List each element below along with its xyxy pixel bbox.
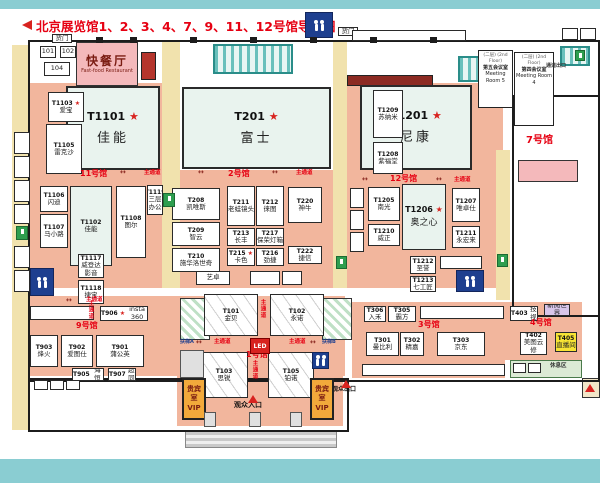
booth-T1210: T1210威正 [368, 224, 400, 246]
main-aisle-label: 主通道 [454, 178, 471, 184]
hall3-label: 3号馆 [418, 321, 440, 329]
exit-sign-icon [336, 256, 347, 269]
booth-box [420, 306, 504, 319]
booth-102: 102 [60, 46, 76, 58]
hall2-label: 2号馆 [228, 170, 250, 178]
booth-T1119: T1119三层办公 [147, 185, 163, 215]
booth-104: 104 [44, 62, 70, 76]
booth-T1105: T1105雷克沙 [46, 124, 82, 174]
booth-box [580, 28, 596, 40]
booth-T1208: T1208紫福堂 [373, 142, 403, 174]
exit-arrow-icon [585, 384, 595, 392]
wall-pillar [370, 37, 377, 43]
booth-box [14, 180, 30, 202]
entrance-post [249, 412, 261, 427]
booth-T1205: T1205南光 [368, 187, 400, 221]
escalator-b-label: 扶梯B [322, 340, 336, 345]
wall-pillar [250, 37, 257, 43]
booth-T1209: T1209苏纳米 [373, 90, 403, 138]
booth-box [513, 363, 526, 373]
booth-T1107: T1107马小路 [40, 214, 68, 248]
booth-box [14, 270, 30, 292]
aisle-arrow: ↔ [120, 169, 126, 176]
booth-T201: T201 ★富士 [182, 87, 331, 169]
aisle-arrow: ↔ [196, 339, 202, 346]
rest-area-label: 休息区 [550, 364, 567, 370]
booth-艺卓: 艺卓 [196, 271, 230, 285]
booth-T222: T222捷信 [288, 246, 322, 264]
passage-exit-label: 通道出口 [546, 64, 566, 69]
booth-box [250, 271, 280, 285]
booth-box [66, 380, 80, 390]
hall7-wall [512, 95, 600, 317]
booth-T405: T405直播间 [555, 332, 577, 352]
exit-sign-icon [497, 254, 508, 267]
main-aisle-label: 主通道 [214, 340, 231, 346]
booth-T103: T103思锐 [200, 352, 248, 398]
booth-T402: T402美图云修 [520, 332, 547, 355]
booth-T1206: T1206 ★奥之心 [402, 184, 446, 250]
booth-T209: T209智云 [172, 222, 220, 246]
booth-T215: T215 ★卡色 [227, 248, 255, 266]
booth-T901: T901蒲公英 [96, 335, 144, 367]
wall-pillar [96, 37, 103, 43]
hall9-label: 9号馆 [76, 322, 98, 330]
booth-新阅世界: 新阅世界 [544, 304, 570, 316]
booth-box [14, 132, 30, 154]
service-desk [180, 350, 204, 378]
aisle-arrow: ↔ [310, 339, 316, 346]
booth-T105: T105铂诺 [268, 352, 314, 398]
booth-T212: T212徕图 [256, 186, 284, 226]
aisle-arrow: ↔ [272, 169, 278, 176]
led-screen: LED [250, 338, 270, 354]
wall-pillar [190, 37, 197, 43]
booth-T1103: T1103 ★爱宝 [48, 92, 84, 122]
floor-map: 北京展览馆1、2、3、4、7、9、11、12号馆导览图 T1101 ★佳能T20… [0, 0, 600, 483]
booth-快餐厅: 快餐厅Fast-food Restaurant [76, 42, 138, 86]
restroom-icon [305, 12, 333, 38]
main-aisle-label: 主通道 [296, 171, 313, 177]
booth-T906: T906 ★insta 360 [100, 306, 148, 321]
bottom-border [0, 459, 600, 483]
booth-T301: T301曼比利 [366, 332, 399, 356]
booth-101: 101 [40, 46, 56, 58]
wall-pillar [430, 37, 437, 43]
top-border [0, 0, 600, 9]
hall11-label: 11号馆 [80, 170, 107, 178]
booth-T210: T210施华洛世奇 [172, 248, 220, 272]
booth-box [362, 364, 505, 376]
wall-pillar [130, 37, 137, 43]
escalator-a-label: 扶梯A [180, 340, 194, 345]
booth-T1207: T1207唯卓仕 [452, 188, 480, 222]
exit-arrow-icon [341, 380, 351, 388]
main-aisle-label: 主通道 [144, 171, 161, 177]
entrance-post [290, 412, 302, 427]
booth-box [350, 210, 364, 230]
booth-T305: T305霸方 [388, 306, 416, 322]
booth-T211: T211老蛙镜头 [227, 186, 255, 226]
restroom-icon [456, 270, 484, 292]
booth-T902: T902爱图仕 [61, 335, 93, 367]
restroom-icon [30, 268, 54, 296]
exit-sign-icon [163, 193, 175, 207]
hall7-label: 7号馆 [526, 136, 553, 146]
booth-T1117: T1117威登达影音 [78, 254, 104, 278]
booth-T213: T213长丰 [227, 228, 255, 246]
main-aisle-label: 主通道 [259, 299, 265, 319]
booth-box [282, 271, 302, 285]
map-marker-icon [22, 20, 32, 30]
hall12-label: 12号馆 [390, 175, 417, 183]
exit-sign-icon [16, 226, 28, 240]
vip-room: 贵宾室VIP [182, 378, 206, 420]
page-title: 北京展览馆1、2、3、4、7、9、11、12号馆导览图 [36, 16, 335, 35]
main-aisle-label: 主通道 [289, 340, 306, 346]
booth-T903: T903烽火 [30, 335, 58, 367]
meeting-room-5: (二层) (2nd Floor)第五会议室Meeting Room 5 [478, 50, 513, 108]
entrance-steps [185, 430, 337, 448]
hall4-label: 4号馆 [530, 319, 552, 327]
vip-room: 贵宾室VIP [310, 378, 334, 420]
booth-box [14, 204, 30, 224]
aisle-arrow: ↔ [362, 176, 368, 183]
booth-box [350, 188, 364, 208]
booth-T303: T303京东 [437, 332, 485, 356]
booth-T1212: T1212至誉 [410, 256, 436, 274]
booth-box [562, 28, 578, 40]
booth-box [528, 363, 541, 373]
booth-box [350, 232, 364, 252]
booth-box [50, 380, 64, 390]
main-aisle-label: 主通道 [251, 360, 257, 380]
booth-货门: 货门 [52, 34, 72, 43]
aisle-arrow: ↔ [198, 169, 204, 176]
booth-box [440, 256, 482, 269]
booth-box [30, 306, 94, 320]
wall-pillar [310, 37, 317, 43]
visitor-entrance-label: 观众入口 [234, 402, 262, 409]
booth-T1211: T1211永宏来 [452, 226, 480, 248]
booth-T217: T217保荣灯箱 [256, 228, 284, 246]
booth-T1108: T1108图尔 [116, 186, 146, 258]
booth-T208: T208凯唯斯 [172, 188, 220, 220]
booth-T102: T102永诺 [270, 294, 324, 336]
booth-box [14, 246, 30, 268]
aisle-arrow: ↔ [66, 297, 72, 304]
booth-T1213: T1213七工匠 [410, 276, 436, 292]
booth-box [14, 156, 30, 178]
booth-box [34, 380, 48, 390]
booth-T1106: T1106闪迪 [40, 186, 68, 212]
booth-T302: T302精嘉 [400, 332, 424, 356]
entrance-arrow-icon [248, 395, 258, 403]
exit-sign-icon [575, 50, 585, 61]
entrance-post [204, 412, 216, 427]
main-aisle-label: 主通道 [87, 300, 93, 320]
booth-T216: T216劲捷 [256, 248, 284, 266]
booth-T306: T306入禾 [364, 306, 386, 322]
booth-T907: T907超同 [108, 368, 136, 381]
aisle-arrow: ↔ [436, 176, 442, 183]
booth-T101: T101金贝 [204, 294, 258, 336]
restroom-icon [312, 352, 329, 369]
booth-T220: T220神牛 [288, 187, 322, 223]
